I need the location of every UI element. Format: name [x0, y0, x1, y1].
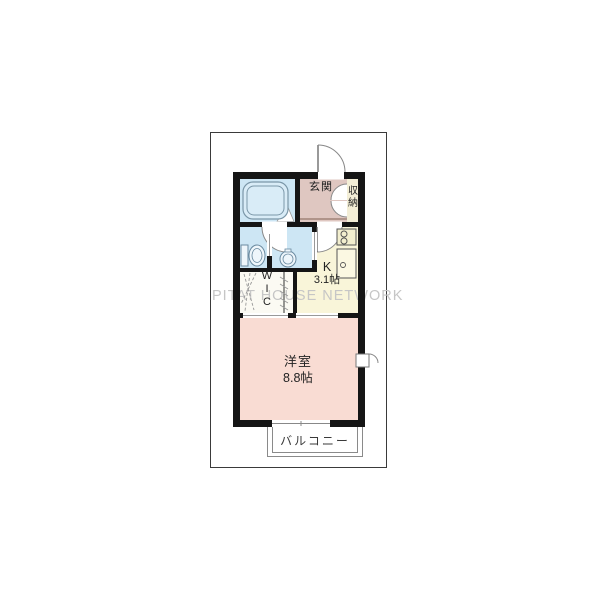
kitchen-label: K: [307, 260, 347, 274]
wall-middle-band: [240, 222, 358, 227]
balcony-inner-rail: バルコニー: [272, 427, 358, 453]
entrance-label: 玄関: [300, 181, 342, 194]
room-washroom: [272, 227, 312, 268]
living-room-label: 洋室: [258, 355, 338, 370]
room-bathroom: [240, 179, 296, 223]
wic-letter-c: C: [258, 296, 276, 309]
balcony: バルコニー: [267, 427, 363, 457]
floorplan-image: PITAT HOUSE NETWORK: [0, 0, 600, 600]
storage-label: 収納: [345, 185, 357, 209]
wall-top: [233, 172, 365, 179]
room-toilet: [240, 227, 267, 268]
wic-letter-w: W: [258, 270, 276, 283]
wall-wic-kitchen: [293, 272, 297, 313]
kitchen-size-label: 3.1帖: [303, 274, 351, 287]
wall-left: [233, 172, 240, 427]
wall-bottom: [233, 420, 365, 427]
wall-below-washroom: [240, 268, 317, 272]
wic-label: W I C: [258, 270, 276, 310]
wall-toilet-washroom: [267, 227, 272, 268]
living-room-size-label: 8.8帖: [258, 371, 338, 385]
wic-letter-i: I: [258, 283, 276, 296]
wall-above-living: [240, 313, 358, 318]
balcony-label: バルコニー: [280, 430, 350, 449]
wall-right: [358, 172, 365, 427]
